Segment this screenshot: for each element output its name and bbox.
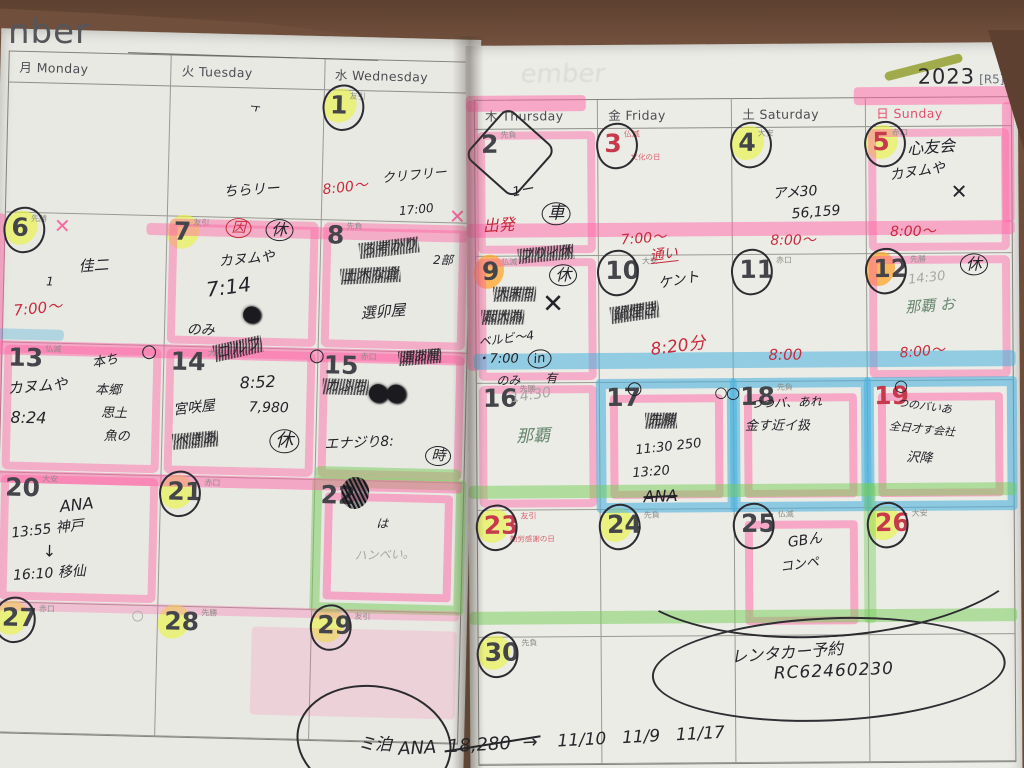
- handwritten-note: 16:10 移仙: [13, 564, 87, 583]
- flight-arrow: →: [522, 732, 538, 754]
- handwritten-note: アメ30: [772, 184, 818, 201]
- handwritten-note: 佳二: [78, 258, 109, 275]
- handwritten-note: 本郷: [95, 383, 121, 397]
- date-row: 6先勝: [5, 212, 167, 243]
- year-label: 2023[R5]: [918, 64, 1005, 89]
- rokuyo-label: 仏滅: [501, 258, 517, 267]
- holiday-label: 文化の日: [630, 153, 731, 161]
- day-cell-4: 4大安アメ3056,1598:00〜: [732, 127, 867, 255]
- handwritten-note: 選卯屋: [360, 302, 406, 321]
- day-cell-16: 16先勝14:30那覇: [477, 383, 601, 511]
- handwritten-note: 休: [549, 264, 577, 286]
- handwritten-note: 魚の: [104, 430, 130, 444]
- date-row: 3仏滅文化の日: [598, 128, 731, 161]
- date-row: 21赤口: [161, 476, 314, 507]
- handwritten-note: 思土: [101, 407, 127, 421]
- day-cell-27: 27赤口○: [0, 602, 159, 736]
- weekday-header-row: 木 Thursday金 Friday土 Saturday日 Sunday: [475, 97, 1011, 130]
- handwritten-note: つつバ、あれ: [750, 395, 822, 410]
- handwritten-note: 土木な倉: [340, 266, 401, 285]
- date-number: 6: [11, 213, 29, 242]
- handwritten-note: カふち: [323, 379, 369, 396]
- date-number: 30: [485, 638, 520, 667]
- handwritten-note: 8:20分: [649, 335, 706, 359]
- corner-scribble-text: ミ泊: [358, 729, 393, 755]
- handwritten-note: 那覇 お: [905, 297, 956, 316]
- handwritten-note: 宮咲屋: [172, 399, 215, 418]
- date-row: 1友引: [324, 90, 473, 121]
- day-cell-8: 8先負ろ考かり2部土木な倉選卯屋: [318, 220, 470, 354]
- handwritten-note: エナジり8:: [324, 435, 394, 452]
- handwritten-note: 8:52: [240, 374, 277, 392]
- handwritten-note: 56,159: [791, 204, 841, 222]
- planner-left-page: 月 Monday火 Tuesday水 Wednesdayトちらリー✕1友引8:0…: [0, 28, 481, 768]
- date-row: 15赤口: [317, 350, 466, 381]
- handwritten-note: カヌムや: [218, 249, 275, 268]
- date-number: 10: [605, 256, 640, 285]
- handwritten-note: 8:24: [10, 410, 46, 427]
- handwritten-note: ○: [309, 347, 325, 365]
- handwritten-note: ANA: [59, 496, 94, 516]
- date-row: 13仏滅: [2, 342, 164, 373]
- handwritten-note: カヌムや: [889, 161, 946, 183]
- handwritten-note: ✕: [542, 292, 564, 318]
- date-row: 4大安: [732, 127, 865, 155]
- handwritten-note: 先勝: [645, 413, 677, 429]
- date-number: 9: [482, 257, 500, 286]
- handwritten-note: 大末ち: [493, 287, 536, 302]
- weekday-header-thursday: 木 Thursday: [475, 100, 598, 129]
- flight-date-1: 11/10: [557, 729, 607, 752]
- handwritten-note: ✕: [951, 182, 968, 202]
- date-row: 2先負: [475, 129, 597, 157]
- week-row: 9仏滅フりィ休休✕大末ち起大為ベルビ〜4・7:00inのみ有10大安通いケント鍋…: [476, 253, 1013, 384]
- week-row: 2先負1ー出発車3仏滅文化の日7:00〜4大安アメ3056,1598:00〜5赤…: [475, 126, 1012, 257]
- day-cell-11: 11赤口8:00: [733, 254, 868, 382]
- handwritten-note: 全日才す会社: [888, 420, 955, 437]
- rokuyo-label: 仏滅: [45, 344, 61, 353]
- rokuyo-label: 赤口: [776, 256, 792, 265]
- date-row: 11赤口: [733, 254, 866, 282]
- rokuyo-label: 仏滅: [624, 130, 640, 139]
- date-number: 13: [8, 343, 43, 373]
- handwritten-note: ○: [141, 343, 157, 361]
- weekday-header-monday: 月 Monday: [9, 51, 172, 85]
- date-row: 23友引勤労感謝の日: [478, 510, 600, 543]
- day-cell-9: 9仏滅フりィ休休✕大末ち起大為ベルビ〜4・7:00inのみ有: [476, 256, 600, 384]
- date-number: 27: [2, 602, 37, 632]
- date-number: 15: [323, 350, 358, 380]
- handwritten-note: 休: [960, 253, 988, 275]
- handwritten-note: ○: [131, 608, 144, 622]
- handwritten-note: ハンベい。: [355, 548, 415, 562]
- weekday-header-sunday: 日 Sunday: [866, 97, 1011, 126]
- handwritten-note: 休: [269, 429, 300, 454]
- handwritten-note: 14:30: [907, 269, 946, 286]
- date-row: 22: [314, 480, 463, 511]
- handwritten-note: in: [527, 348, 553, 370]
- rokuyo-label: 先負: [777, 383, 793, 392]
- handwritten-note: 沢降: [906, 451, 933, 466]
- handwritten-note: 休: [265, 219, 294, 242]
- month-name-partial: nber: [8, 12, 90, 52]
- date-row: 29友引: [311, 610, 460, 641]
- handwritten-note: ●●: [367, 380, 403, 405]
- handwritten-note: 2部: [433, 254, 453, 266]
- day-cell-21: 21赤口: [159, 476, 315, 610]
- day-cell-6: ✕6先勝佳二17:00〜: [3, 212, 169, 346]
- handwritten-note: 金す近イ扱: [745, 419, 810, 432]
- date-number: 22: [320, 480, 355, 510]
- weekday-header-tuesday: 火 Tuesday: [171, 55, 325, 89]
- date-number: 21: [167, 476, 202, 506]
- handwritten-note: 車: [542, 202, 571, 225]
- handwritten-note: 8:00〜: [890, 225, 936, 239]
- date-row: 28先勝: [158, 606, 311, 637]
- handwritten-note: 起大為: [481, 309, 524, 324]
- ink-ghost-text: ember: [519, 59, 606, 90]
- rokuyo-label: 先勝: [201, 608, 217, 617]
- rokuyo-label: 赤口: [39, 604, 55, 613]
- rokuyo-label: 赤口: [361, 352, 377, 361]
- handwritten-note: 心友会: [906, 137, 955, 157]
- day-cell-2: 2先負1ー出発車: [475, 129, 599, 257]
- date-number: 5: [872, 127, 890, 156]
- date-number: 12: [873, 254, 908, 283]
- rental-note-line2: RC62460230: [773, 659, 894, 684]
- date-number: 28: [164, 606, 199, 636]
- handwritten-note: 7:14: [205, 274, 252, 300]
- date-number: 14: [170, 346, 205, 376]
- day-cell-1: ✕1友引8:00〜クリフリー17:00: [321, 90, 473, 224]
- rokuyo-label: 先勝: [910, 255, 926, 264]
- handwritten-note: 出発: [482, 217, 515, 235]
- handwritten-note: べきあ: [171, 430, 218, 450]
- rokuyo-label: 先負: [500, 131, 516, 140]
- handwritten-note: ベルビ〜4: [478, 329, 535, 348]
- handwritten-note: 8:00〜: [899, 343, 945, 360]
- week-row: 13仏滅カヌムや8:24本ち本郷思土魚の○14大安ゴルフ8:52宮咲屋7,980…: [0, 342, 467, 483]
- handwritten-note: ○: [726, 385, 740, 401]
- day-cell-20: 20大安ANA13:55 神戸↓16:10 移仙: [0, 472, 162, 606]
- weekday-header-saturday: 土 Saturday: [732, 98, 866, 127]
- rokuyo-label: 友引: [520, 511, 536, 520]
- day-cell-3: 3仏滅文化の日7:00〜: [598, 128, 733, 256]
- handwritten-note: 8:00〜: [321, 178, 368, 197]
- handwritten-note: ○: [627, 380, 643, 398]
- rokuyo-label: 大安: [42, 474, 58, 483]
- rokuyo-label: 大安: [758, 129, 774, 138]
- handwritten-note: カヌムや: [8, 377, 69, 397]
- rokuyo-label: 先負: [521, 638, 537, 647]
- flight-airline: ANA: [398, 737, 437, 760]
- handwritten-note: クリフリー: [381, 167, 447, 186]
- handwritten-note: 時: [425, 446, 451, 467]
- date-number: 20: [5, 472, 40, 502]
- year-text: 2023: [918, 64, 976, 88]
- handwritten-note: ○: [894, 378, 908, 394]
- handwritten-note: ト: [249, 101, 262, 114]
- handwritten-note: 8:00: [768, 348, 802, 363]
- handwritten-note: のみ: [496, 375, 520, 387]
- day-cell-7: 7友引因休カヌムや7:14●のみ: [165, 216, 321, 350]
- day-cell-5: 5赤口心友会カヌムや✕8:00〜: [866, 126, 1012, 254]
- handwritten-note: は: [376, 518, 388, 530]
- handwritten-note: 1: [46, 275, 54, 287]
- date-number: 8: [327, 220, 345, 249]
- pink-x-mark: ✕: [54, 214, 71, 238]
- calendar-grid-left: 月 Monday火 Tuesday水 Wednesdayトちらリー✕1友引8:0…: [0, 50, 475, 744]
- handwritten-note: 有: [545, 372, 557, 384]
- date-number: 1: [330, 90, 348, 119]
- handwritten-note: ちらリー: [223, 182, 280, 199]
- handwritten-note: ●: [242, 303, 259, 325]
- handwritten-note: 7,980: [249, 400, 289, 415]
- day-cell-10: 10大安通いケント鍋煙き8:20分: [599, 255, 734, 383]
- rokuyo-label: 先負: [346, 222, 362, 231]
- day-cell-22: 22はハンベい。: [312, 480, 464, 614]
- handwritten-note: 17:00: [398, 202, 434, 217]
- handwritten-note: 7:00〜: [13, 299, 63, 319]
- day-cell-12: 12先勝休14:30那覇 お8:00〜: [867, 253, 1013, 381]
- week-row: トちらリー✕1友引8:00〜クリフリー17:00: [6, 82, 473, 223]
- handwritten-note: のみ: [187, 323, 215, 338]
- planner-right-page: ember 2023[R5] 木 Thursday金 Friday土 Satur…: [465, 42, 1022, 768]
- day-cell-14: 14大安ゴルフ8:52宮咲屋7,980べきあ休: [162, 346, 318, 480]
- weekday-header-friday: 金 Friday: [598, 99, 732, 128]
- rokuyo-label: 友引: [193, 218, 209, 227]
- date-number: 29: [317, 610, 352, 640]
- week-row: ✕6先勝佳二17:00〜7友引因休カヌムや7:14●のみ8先負ろ考かり2部土木な…: [3, 212, 470, 353]
- rokuyo-label: 先勝: [31, 214, 47, 223]
- date-number: 11: [739, 255, 774, 284]
- week-row: 20大安ANA13:55 神戸↓16:10 移仙21赤口22はハンベい。: [0, 472, 463, 613]
- handwritten-note: 鍋煙き: [609, 300, 660, 324]
- date-row: 30先負: [479, 637, 601, 665]
- page-gutter-shadow: [452, 36, 484, 768]
- rokuyo-label: 赤口: [204, 478, 220, 487]
- date-number: 4: [738, 128, 756, 157]
- flight-date-3: 11/17: [675, 723, 725, 746]
- day-cell-empty: [6, 82, 172, 216]
- rokuyo-label: 友引: [350, 92, 366, 101]
- handwritten-note: 那覇: [516, 428, 551, 446]
- handwritten-note: ANA: [643, 488, 677, 505]
- planner-photo: 月 Monday火 Tuesday水 Wednesdayトちらリー✕1友引8:0…: [0, 0, 1024, 768]
- handwritten-note: 11:30 250: [635, 437, 702, 457]
- day-cell-28: 28先勝: [155, 606, 311, 740]
- rokuyo-label: 赤口: [892, 128, 908, 137]
- handwritten-note: 7:00〜: [620, 230, 666, 247]
- day-cell-empty: トちらリー: [168, 86, 324, 220]
- day-cell-13: 13仏滅カヌムや8:24本ち本郷思土魚の○: [0, 342, 165, 476]
- date-row: 17: [600, 382, 733, 410]
- handwritten-note: 13:20: [632, 464, 670, 480]
- date-number: 3: [604, 129, 622, 158]
- rokuyo-label: 友引: [354, 612, 370, 621]
- handwritten-note: 13:55 神戸: [10, 518, 84, 540]
- handwritten-note: 1ー: [511, 183, 534, 200]
- date-number: 7: [173, 217, 191, 246]
- day-cell-15: 15赤口○選あ屋カふち●●エナジり8:時: [315, 350, 467, 484]
- handwritten-note: 8:00〜: [770, 233, 816, 247]
- era-text: [R5]: [979, 72, 1004, 86]
- flight-date-2: 11/9: [622, 726, 661, 748]
- day-cell-23: 23友引勤労感謝の日: [478, 510, 602, 638]
- holiday-label: 勤労感謝の日: [510, 535, 600, 543]
- flight-fare-struck: 18,280: [447, 733, 511, 757]
- handwritten-note: ↓: [43, 543, 57, 559]
